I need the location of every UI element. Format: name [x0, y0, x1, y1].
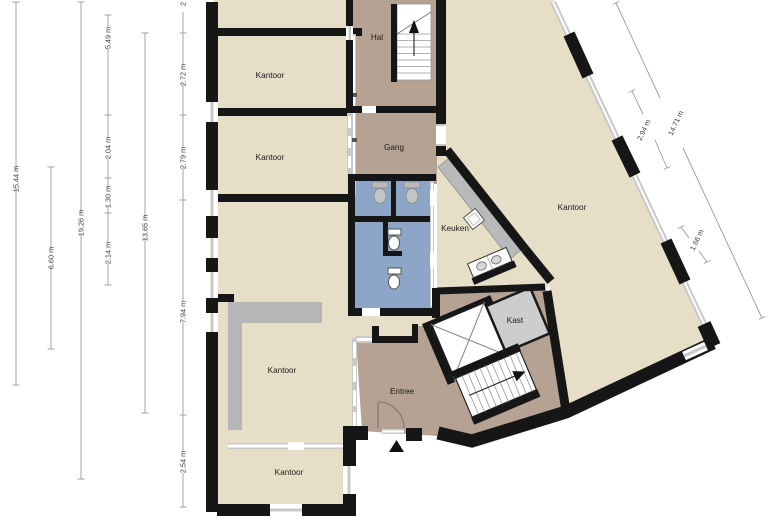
wall-sanitary-divider [391, 174, 396, 222]
dim-label-partial: 2 [179, 2, 188, 6]
toilet-bowl [389, 275, 400, 289]
toilet-tank [388, 268, 401, 274]
door-opening [430, 190, 434, 206]
wall-stub [412, 324, 418, 338]
wall-horizontal [218, 108, 354, 116]
gray-zone-horizontal [228, 302, 322, 323]
dim-label: 15.44 m [12, 166, 21, 192]
door-jamb [436, 124, 446, 126]
gray-zone-vertical [228, 302, 242, 430]
room-label-keuken: Keuken [441, 224, 469, 233]
glass-line [382, 431, 404, 433]
wall-horizontal [218, 28, 362, 36]
door-opening [362, 308, 380, 316]
dim-label: 2.04 m [104, 137, 113, 159]
glass-dash [353, 342, 356, 358]
room-label-hal: Hal [371, 33, 383, 42]
toilet-bowl [389, 236, 400, 250]
wall-stub [218, 294, 234, 302]
dim-label: 7.94 m [179, 301, 188, 323]
room-label-kantoor-b: Kantoor [256, 153, 285, 162]
wall-core-north [437, 287, 545, 291]
dim-label: 14.71 m [666, 109, 685, 137]
sink-bowl [374, 189, 386, 204]
glass-dash [348, 136, 351, 148]
door-opening [362, 106, 376, 113]
wall-sanitary-west [348, 174, 355, 316]
dim-label: 2.14 m [104, 242, 113, 264]
wall-stub-core [432, 288, 440, 318]
wall-toilet-stall [383, 222, 388, 256]
dim-label: 13.65 m [141, 215, 150, 241]
glass-line [356, 338, 372, 341]
wall-stub [372, 326, 379, 338]
door-jamb [436, 144, 446, 146]
sink-fixture [404, 182, 420, 188]
wall-horizontal [218, 194, 354, 202]
facade-wall-segment [704, 324, 714, 346]
dim-label: 2.54 m [179, 451, 188, 473]
stair-hal [391, 4, 431, 82]
sink-bowl [406, 189, 418, 204]
dim-label: 19.26 m [77, 210, 86, 236]
wall-toilet-stall [383, 251, 402, 256]
glass-dash [348, 116, 351, 128]
dim-label: 2.79 m [179, 147, 188, 169]
dim-label: 2.72 m [179, 64, 188, 86]
glass-line [228, 445, 344, 448]
glass-partition-line [353, 36, 355, 194]
toilet-tank [388, 229, 401, 235]
glass-dash [353, 366, 356, 382]
dim-label: 1.66 m [688, 228, 706, 252]
door-opening [430, 252, 434, 268]
glass-dash [348, 156, 351, 168]
window-glass [349, 26, 352, 40]
window-glass [348, 466, 351, 494]
dim-label: 1.30 m [104, 186, 113, 208]
floor-plan: Kantoor Kantoor Kantoor Kantoor Kantoor … [0, 0, 780, 520]
window-glass [270, 509, 302, 512]
entrance-arrow [389, 440, 404, 452]
glass-dash [353, 390, 356, 406]
room-label-entree: Entree [390, 387, 415, 396]
room-label-kantoor-bottom: Kantoor [275, 468, 304, 477]
door-opening [288, 442, 304, 450]
dim-label: 6.60 m [47, 247, 56, 269]
dimension-lines-left: 15.44 m 6.60 m 19.26 m 5.49 m 2.04 m 1.3… [12, 2, 188, 507]
room-label-kast: Kast [507, 316, 524, 325]
wall-hal-west [346, 0, 353, 110]
room-label-gang: Gang [384, 143, 404, 152]
dim-label: 2.94 m [635, 118, 653, 142]
floor-plan-drawing: Kantoor Kantoor Kantoor Kantoor Kantoor … [0, 0, 780, 520]
room-label-kantoor-left: Kantoor [268, 366, 297, 375]
sink-fixture [372, 182, 388, 188]
wall-sanitary-south [348, 308, 438, 316]
wall-entree-south [354, 426, 368, 440]
room-label-kantoor-a: Kantoor [256, 71, 285, 80]
room-kantoor-bottom [217, 442, 356, 512]
glass-dash [353, 412, 356, 426]
wall-entree-south [406, 428, 422, 441]
room-label-kantoor-right: Kantoor [558, 203, 587, 212]
door-opening [436, 124, 446, 146]
dim-label: 5.49 m [104, 27, 113, 49]
